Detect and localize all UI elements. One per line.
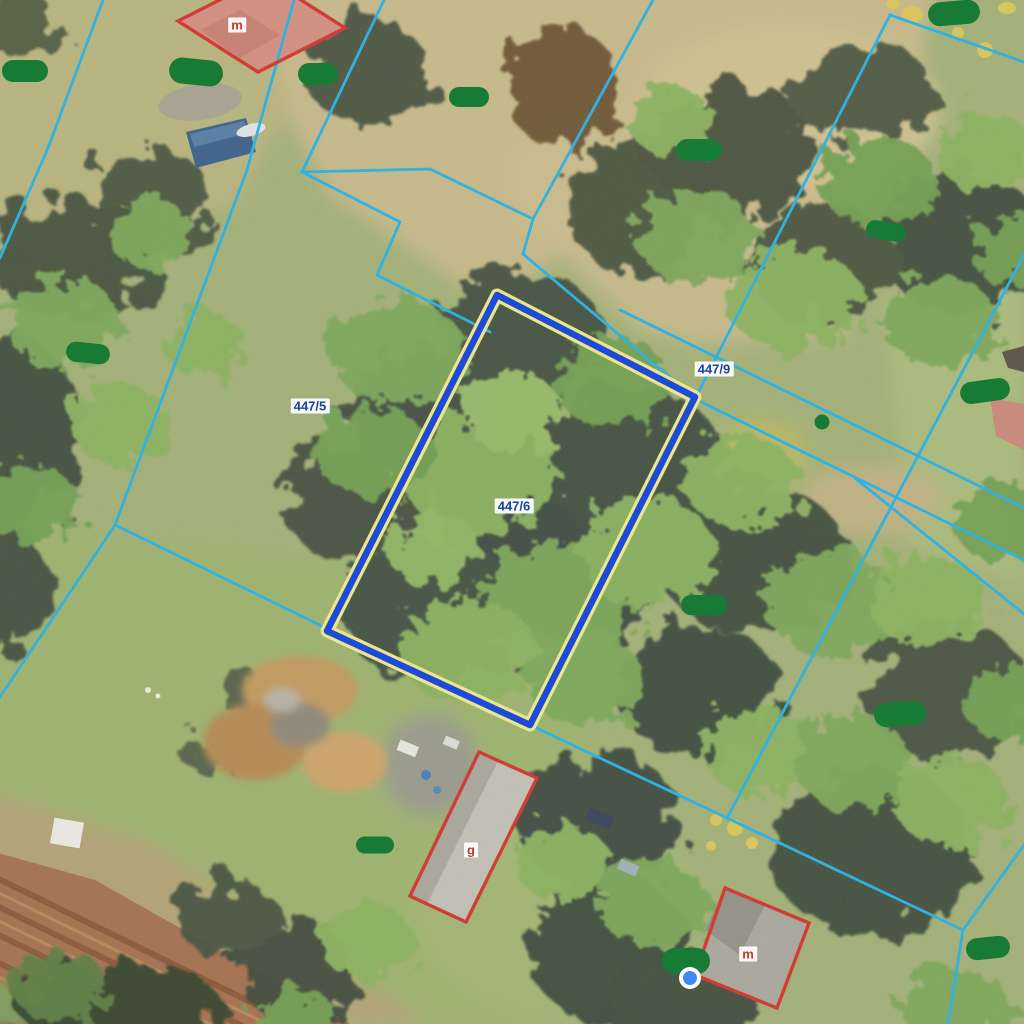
tree-marker-icon (815, 415, 830, 430)
tree-marker-icon (865, 219, 908, 244)
tree-marker-icon (356, 837, 394, 854)
location-marker-group[interactable] (679, 967, 701, 989)
tree-marker-icon (2, 60, 48, 82)
building-label-m: m (228, 18, 246, 33)
building-label-g: g (464, 843, 478, 858)
parcel-boundary-line (302, 0, 693, 397)
parcel-label-447-6[interactable]: 447/6 (495, 499, 534, 514)
tree-marker-icon (168, 56, 224, 88)
parcel-boundary-line (530, 725, 727, 818)
tree-marker-icon (927, 0, 981, 27)
parcel-boundary-line (115, 525, 330, 630)
map-canvas[interactable]: 447/5447/6447/9mgm (0, 0, 1024, 1024)
building-label-m: m (739, 947, 757, 962)
parcel-boundary-line (302, 172, 490, 332)
location-marker[interactable] (683, 971, 697, 985)
parcel-label-447-5[interactable]: 447/5 (291, 399, 330, 414)
parcel-label-447-9[interactable]: 447/9 (695, 362, 734, 377)
parcel-boundary-line (697, 15, 890, 395)
parcel-boundary-line (0, 0, 103, 258)
parcel-boundary-line (0, 0, 294, 697)
tree-markers (2, 0, 1011, 974)
tree-marker-icon (449, 87, 489, 107)
tree-marker-icon (298, 63, 338, 85)
tree-marker-icon (959, 377, 1012, 406)
building-outline-g (410, 752, 537, 922)
parcel-boundary-line (620, 310, 1024, 508)
tree-marker-icon (676, 139, 722, 161)
parcel-boundary-line (695, 399, 1024, 560)
parcel-boundary-line (963, 845, 1024, 930)
tree-marker-icon (873, 700, 927, 728)
tree-marker-icon (681, 595, 727, 615)
tree-marker-icon (65, 341, 111, 365)
tree-marker-icon (965, 935, 1011, 961)
parcel-boundary-line (533, 0, 653, 219)
